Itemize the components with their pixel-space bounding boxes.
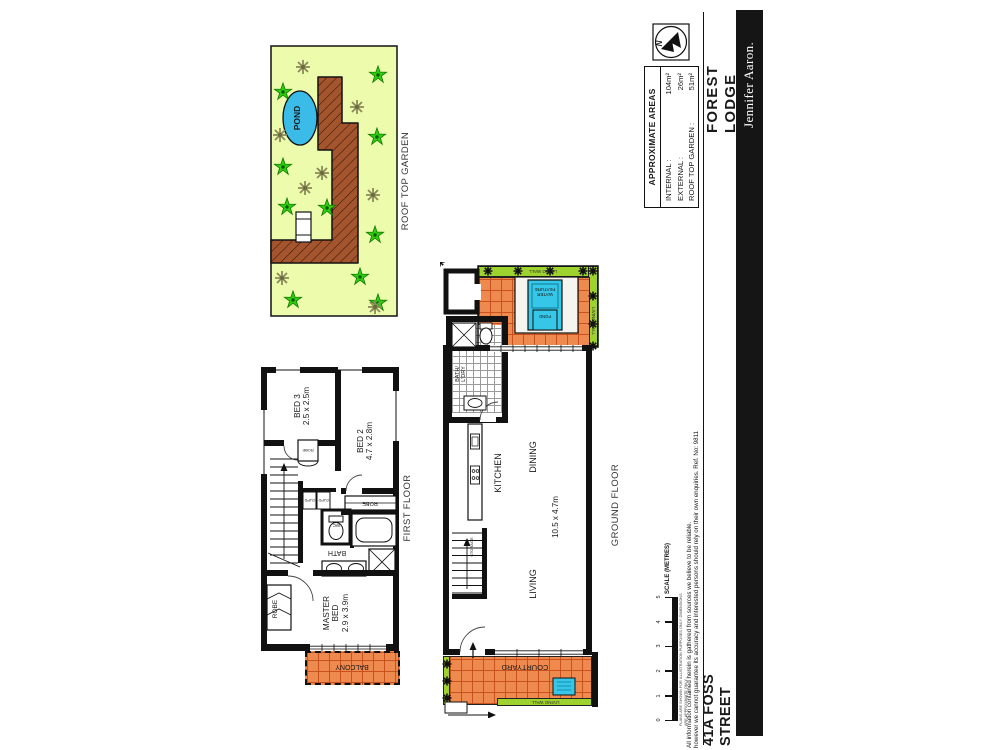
scale-tick-2: 2 xyxy=(656,667,663,675)
bed3-robe-label: ROBE xyxy=(299,446,317,454)
scale-bar xyxy=(672,597,678,721)
wc-label: WC xyxy=(330,521,343,529)
areas-row-roof-garden: ROOF TOP GARDEN :51m² xyxy=(686,73,698,201)
scale-tick-1: 1 xyxy=(656,692,663,700)
roof-garden-title: ROOF TOP GARDEN xyxy=(399,126,414,236)
street-address: 41A FOSS STREET xyxy=(706,614,730,746)
scale-tick-3: 3 xyxy=(656,642,663,650)
entry-step xyxy=(445,702,467,713)
areas-title: APPROXIMATE AREAS xyxy=(645,67,661,207)
floor-plan-sheet: POND ROOF TOP GARDEN xyxy=(0,0,1000,750)
balcony-label: BALCONY xyxy=(322,659,382,673)
pond-label: POND xyxy=(287,97,309,139)
areas-row-external: EXTERNAL :26m² xyxy=(675,73,687,201)
disclaimer-line-1: All information contained herein is gath… xyxy=(686,390,693,748)
scale-tick-4: 4 xyxy=(656,618,663,626)
courtyard-label: COURTYARD xyxy=(496,660,554,673)
ground-floor-stairs xyxy=(452,533,482,593)
living-wall-right-label: LIVING WALL xyxy=(589,296,598,346)
store-room xyxy=(446,271,477,312)
dining-label: DINING xyxy=(524,424,542,490)
agency-name: Jennifer Aaron. xyxy=(741,22,757,128)
balcony-doors xyxy=(310,644,386,651)
bath-label: BATH xyxy=(324,546,350,558)
bed3-label: BED 3 2.5 x 2.5m xyxy=(287,377,317,435)
roof-top-garden-plan xyxy=(270,45,398,317)
areas-row-internal: INTERNAL :104m² xyxy=(663,73,675,201)
scale-tick-0: 0 xyxy=(656,716,663,724)
bed2-label: BED 2 4.7 x 2.8m xyxy=(350,410,380,472)
suburb-title: FOREST LODGE xyxy=(709,13,734,133)
living-wall-top-label: LIVING WALL xyxy=(520,267,566,276)
cooktop xyxy=(471,466,480,484)
courtyard-pond xyxy=(553,678,575,695)
storage-label: STORAGE xyxy=(468,530,476,564)
bed-divider-wall xyxy=(335,370,341,471)
bath-ldry-label: BATH/ L'DRY xyxy=(451,352,471,396)
water-feature-label: WATER FEATURE xyxy=(531,284,559,300)
ground-floor-plan xyxy=(440,262,612,718)
bed3-door-arc xyxy=(284,446,298,460)
scale-label: SCALE (METRES) xyxy=(662,542,675,595)
entry-arrow xyxy=(488,712,496,719)
scale-tick-5: 5 xyxy=(656,593,663,601)
courtyard-pond-label: POND xyxy=(535,310,555,322)
bathtub xyxy=(352,514,396,546)
ground-floor-title: GROUND FLOOR xyxy=(609,450,624,560)
disclaimer-line-2: however we cannot guarantee its accuracy… xyxy=(693,390,700,748)
bed2-robe-label: ROBE xyxy=(356,498,384,508)
master-bed-label: MASTER BED 2.9 x 3.9m xyxy=(320,584,352,642)
garden-bench xyxy=(296,212,311,242)
kitchen-label: KITCHEN xyxy=(490,436,506,510)
ground-toilet-icon xyxy=(480,328,492,344)
master-door-arc xyxy=(288,576,313,601)
living-dim-label: 10.5 x 4.7m xyxy=(548,478,563,556)
master-robe-label: ROBE xyxy=(268,589,283,629)
first-floor-title: FIRST FLOOR xyxy=(401,469,416,547)
cupd-label-1: CUPD xyxy=(303,496,317,504)
approximate-areas-box: APPROXIMATE AREAS INTERNAL :104m² EXTERN… xyxy=(644,66,699,208)
compass-north-label: N xyxy=(654,37,665,50)
living-label: LIVING xyxy=(524,553,542,615)
courtyard-bifold-doors xyxy=(490,345,582,352)
cupd-label-2: CUPD xyxy=(317,496,331,504)
first-floor-stairs xyxy=(268,459,300,567)
living-wall-bottom-label: LIVING WALL xyxy=(523,699,568,706)
